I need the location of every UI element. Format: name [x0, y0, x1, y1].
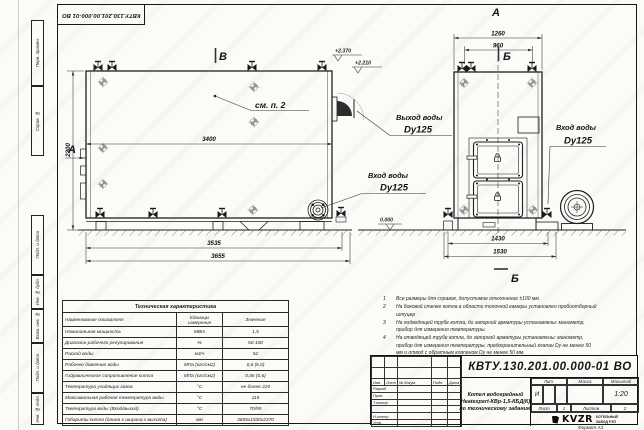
table-row: Расход водым3/ч52 — [63, 349, 289, 360]
title-block-signatures: Изм Лист № докум. Подп. Дата Разраб. Про… — [371, 356, 461, 426]
format-label: Формат А3 — [578, 425, 603, 430]
kvzr-logo-icon — [552, 416, 559, 424]
tech-table-title: Техническая характеристика — [63, 301, 289, 313]
role-nkontr: Н.контр. — [372, 413, 398, 420]
sheets-number: 2 — [611, 404, 639, 412]
role-razrab: Разраб. — [372, 386, 398, 393]
role-utv: Утв. — [372, 419, 398, 426]
stamp-box-inv-podl: Инв. № подл. — [31, 393, 44, 425]
sheet-label: Лист — [531, 404, 557, 412]
table-row: Температура уходящих газов°Сне более 220 — [63, 382, 289, 393]
title-block: Изм Лист № докум. Подп. Дата Разраб. Про… — [370, 355, 638, 425]
notes-block: 1Все размеры для справок, допустимое отк… — [383, 296, 597, 358]
drawing-sheet: КВТУ.130.201.00.000-01 ВО Перв. примен. … — [0, 0, 644, 430]
doc-number-rotated-box: КВТУ.130.201.00.000-01 ВО — [57, 4, 145, 25]
scale-header: Масштаб — [603, 378, 639, 385]
stamp-box-vzam-inv: Взам. инв. № — [31, 309, 44, 343]
table-row: Температура воды (Вход/выход)°С70/95 — [63, 404, 289, 415]
lit-header: Лит. — [531, 378, 567, 385]
sheets-label: Листов — [571, 404, 611, 412]
paper-edge-line — [18, 0, 19, 430]
sheet-number: 1 — [557, 404, 571, 412]
scale-value: 1:20 — [603, 385, 639, 404]
table-row: Гидравлическое сопротивление котлаМПа (к… — [63, 371, 289, 382]
note-item: 3На подводящей трубе котла, до запорной … — [383, 320, 597, 335]
note-item: 4На отводящей трубе котла, до запорной а… — [383, 335, 597, 357]
table-row: Максимальная рабочая температура воды°С1… — [63, 393, 289, 404]
table-row: Номинальная мощностьМВт1,5 — [63, 327, 289, 338]
lit-value: И — [531, 385, 543, 404]
product-name-cell: Котел водогрейный Heatexpert-КВр-1,5-КБД… — [461, 378, 531, 426]
tech-col-value: Значение — [223, 313, 289, 327]
tech-col-units: Единицы измерения — [177, 313, 223, 327]
role-prov: Пров. — [372, 392, 398, 399]
doc-number-rotated: КВТУ.130.201.00.000-01 ВО — [62, 12, 141, 18]
mass-value — [567, 385, 603, 404]
table-row: Рабочее давление водыМПа (кгс/см2)0,6 (6… — [63, 360, 289, 371]
table-row: Габариты котла (длина х ширина х высота)… — [63, 415, 289, 426]
table-row: Диапазон рабочего регулирования%50-100 — [63, 338, 289, 349]
stamp-box-inv-dubl: Инв. № дубл. — [31, 275, 44, 309]
stamp-box-podp-data-2: Подп. и дата — [31, 343, 44, 393]
note-item: 2На боковой стенке котла в области топоч… — [383, 304, 597, 319]
tech-col-name: Наименование показателя — [63, 313, 177, 327]
tech-characteristics-table: Техническая характеристика Наименование … — [62, 300, 289, 426]
role-tkontr: Т.контр. — [372, 399, 398, 406]
note-item: 1Все размеры для справок, допустимое отк… — [383, 296, 597, 303]
doc-number-cell: КВТУ.130.201.00.000-01 ВО — [461, 356, 639, 378]
mass-header: Масса — [567, 378, 603, 385]
stamp-box-perv-primen: Перв. примен. — [31, 20, 44, 86]
stamp-box-podp-data-1: Подп. и дата — [31, 215, 44, 275]
stamp-box-sprav: Справ. № — [31, 86, 44, 156]
kvzr-logo-text: KVZR — [562, 414, 593, 425]
